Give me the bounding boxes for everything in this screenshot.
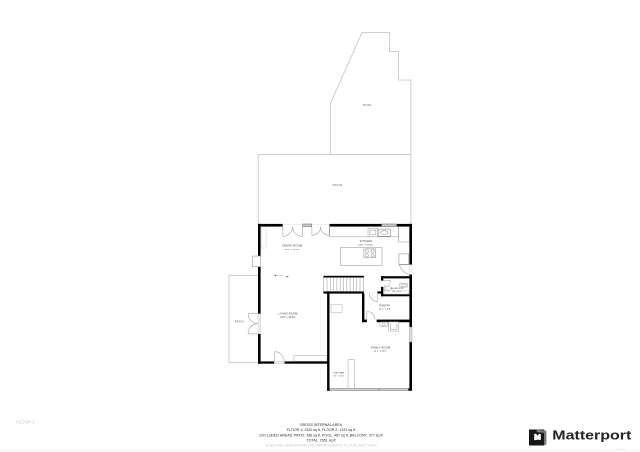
svg-text:13'6" x 15'10": 13'6" x 15'10" (358, 245, 374, 247)
svg-text:PANTRY: PANTRY (379, 303, 390, 307)
svg-text:POOL: POOL (363, 103, 372, 107)
svg-text:11'1" x 5'9": 11'1" x 5'9" (379, 309, 392, 311)
svg-text:14'0" x 26'10": 14'0" x 26'10" (280, 317, 296, 319)
svg-text:PATIO: PATIO (333, 183, 343, 187)
svg-text:LIVING ROOM: LIVING ROOM (279, 312, 298, 316)
svg-text:6'2" x 4'9": 6'2" x 4'9" (392, 291, 402, 293)
svg-text:KITCHEN: KITCHEN (360, 239, 372, 243)
svg-text:DINING ROOM: DINING ROOM (283, 244, 303, 248)
svg-text:SIZES AND DIMENSIONS ARE APPRO: SIZES AND DIMENSIONS ARE APPROXIMATE, AC… (265, 444, 378, 448)
svg-text:BATHROOM: BATHROOM (391, 287, 403, 290)
svg-text:EXCLUDED AREAS: PATIO: 786 sq: EXCLUDED AREAS: PATIO: 786 sq ft, POOL: … (259, 433, 382, 437)
svg-text:Matterport: Matterport (552, 429, 631, 443)
svg-text:11'3" x 16'3": 11'3" x 16'3" (374, 351, 388, 353)
svg-text:4'1" x 6'11": 4'1" x 6'11" (333, 376, 344, 378)
svg-text:14'5" x 10'10": 14'5" x 10'10" (285, 249, 301, 251)
svg-text:FLOOR 1: 1320 sq ft, FLOOR 2:: FLOOR 1: 1320 sq ft, FLOOR 2: 1331 sq ft (287, 428, 355, 432)
svg-text:FAMILY ROOM: FAMILY ROOM (371, 345, 390, 349)
svg-text:PATIO: PATIO (235, 320, 245, 324)
svg-text:FP063: FP063 (616, 448, 626, 452)
svg-text:TOTAL: 2651 sq ft: TOTAL: 2651 sq ft (306, 439, 335, 443)
svg-text:FLOOR 1: FLOOR 1 (16, 419, 35, 424)
svg-text:WET BAR: WET BAR (334, 372, 345, 375)
svg-text:GROSS INTERNAL AREA: GROSS INTERNAL AREA (300, 423, 343, 427)
